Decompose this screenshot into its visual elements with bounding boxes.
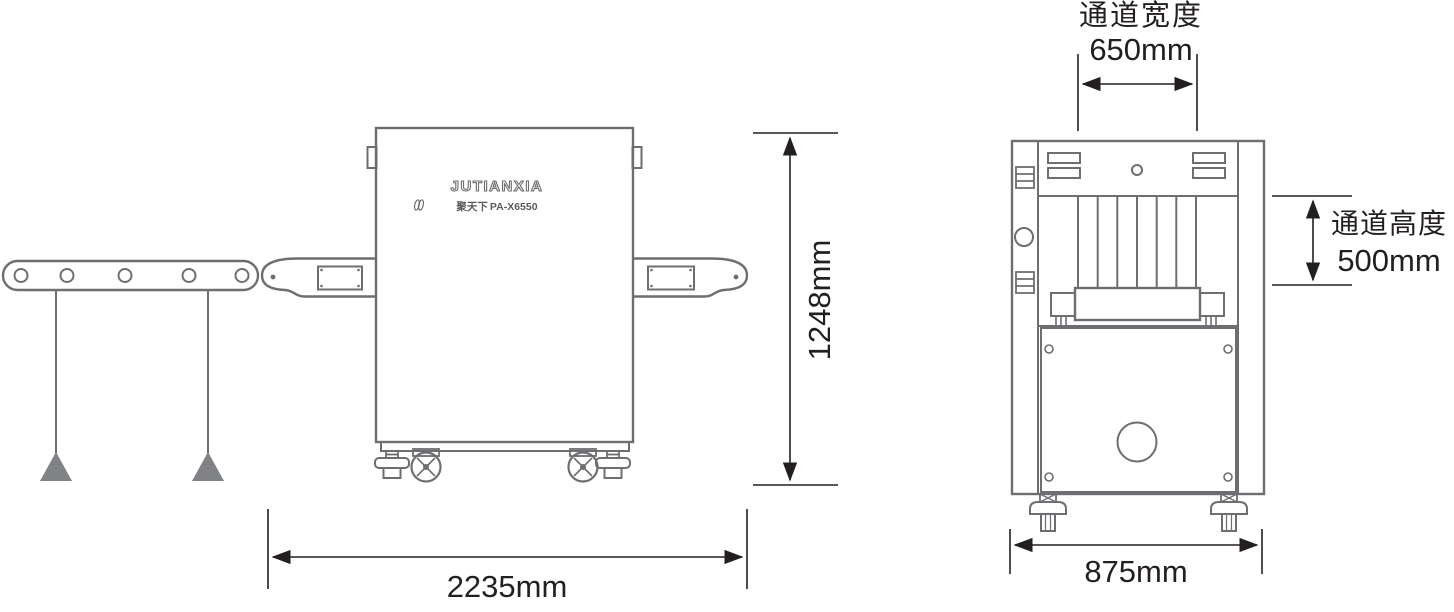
tunnel-height-value: 500mm — [1324, 245, 1454, 278]
base-and-wheels — [375, 442, 630, 482]
overall-width-value: 875mm — [1036, 556, 1236, 589]
tunnel-height-label: 通道高度 — [1324, 209, 1454, 238]
leveling-foot — [375, 451, 409, 478]
leveling-foot — [596, 451, 630, 478]
caster-wheel — [412, 449, 441, 482]
caster-wheel — [569, 449, 598, 482]
model-number-text: PA-X6550 — [490, 201, 538, 213]
model-label: 聚天下PA-X6550 — [413, 199, 581, 214]
overall-length-value: 2235mm — [397, 571, 617, 604]
front-view — [1012, 141, 1264, 531]
leveling-foot — [1211, 494, 1247, 531]
entry-conveyor — [262, 259, 376, 297]
tunnel-width-value: 650mm — [1066, 34, 1216, 67]
cabinet-body — [368, 128, 642, 442]
line-art — [0, 0, 1454, 612]
brand-logo: JUTIANXIA — [413, 178, 581, 195]
side-view — [3, 128, 747, 482]
table-foot — [40, 452, 72, 481]
overall-height-value: 1248mm — [804, 220, 840, 380]
exit-conveyor — [633, 259, 747, 297]
tunnel-width-label: 通道宽度 — [1066, 1, 1216, 31]
technical-drawing-canvas: 通道宽度 650mm 通道高度 500mm 2235mm 1248mm 875m… — [0, 0, 1454, 612]
leveling-foot — [1030, 494, 1066, 531]
roller-table — [3, 261, 258, 481]
table-foot — [192, 452, 224, 481]
front-leveling-feet — [1030, 494, 1247, 531]
brand-cn-text: 聚天下 — [456, 201, 488, 213]
